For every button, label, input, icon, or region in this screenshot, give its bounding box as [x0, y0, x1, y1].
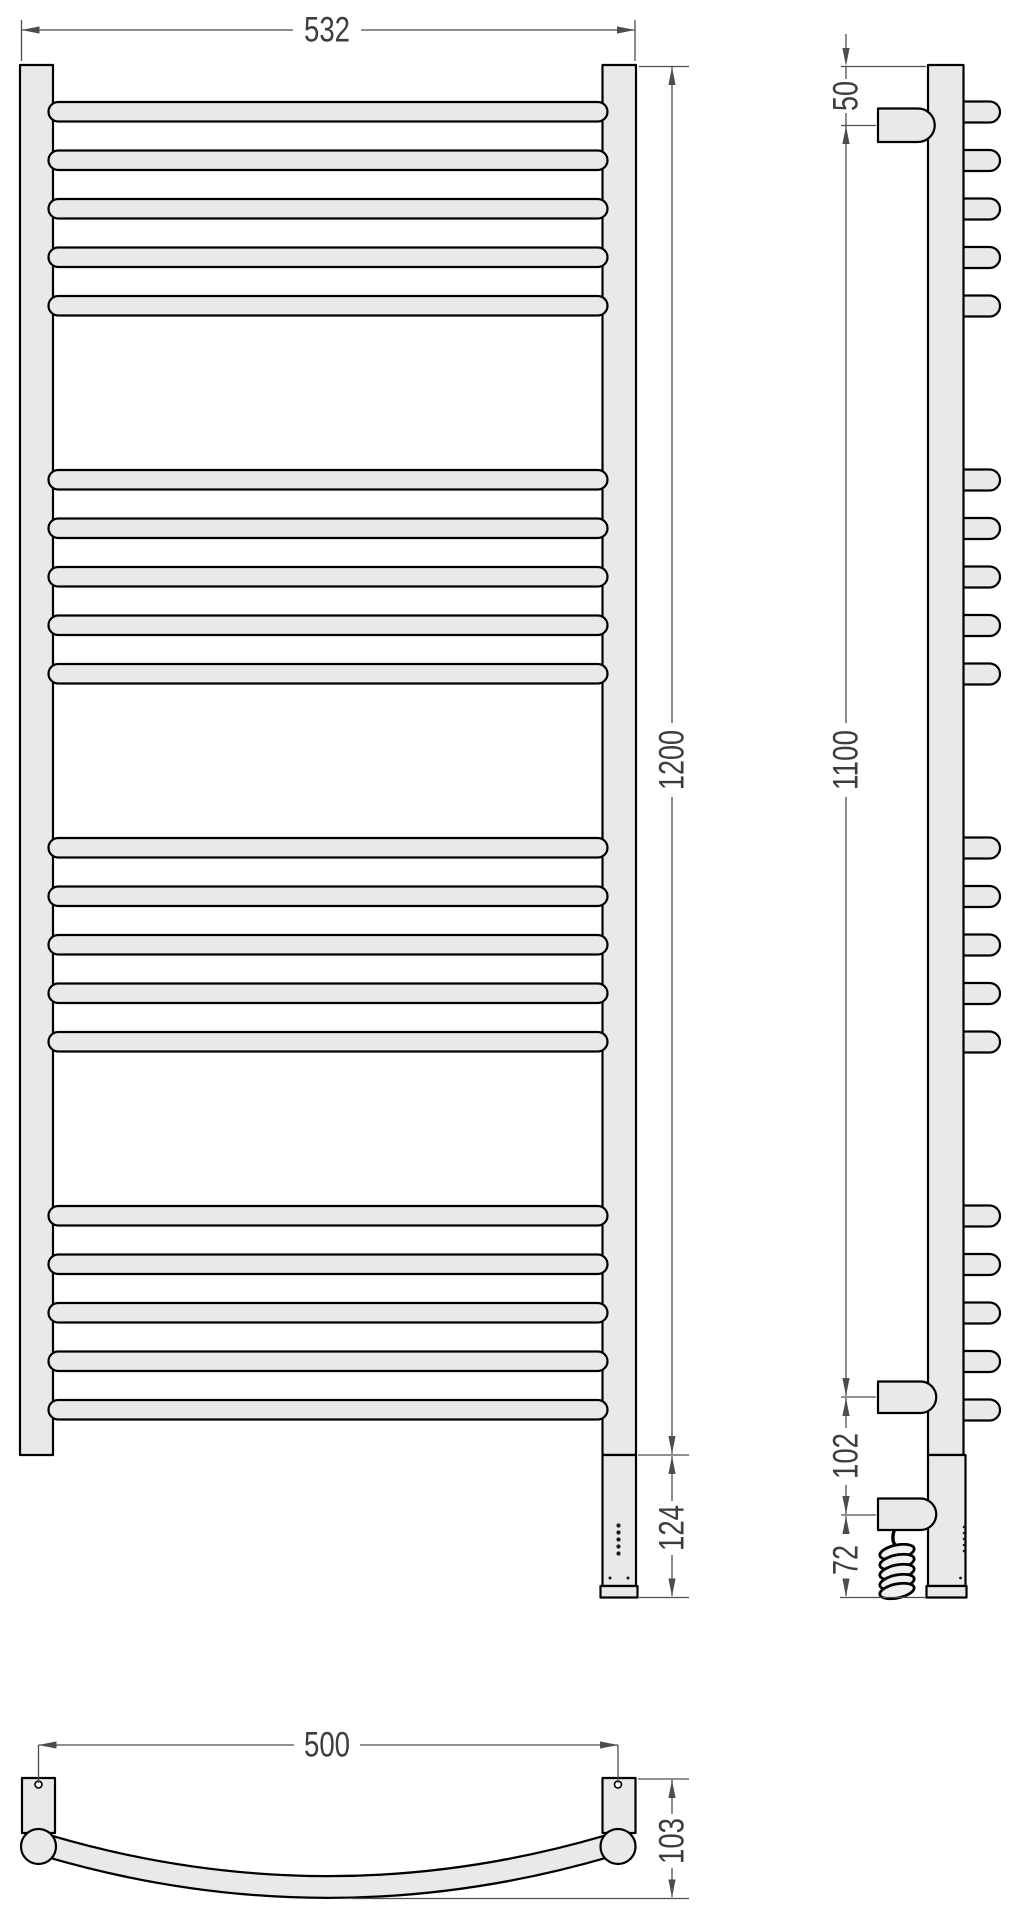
led-tick	[963, 1538, 966, 1541]
led-tick	[963, 1550, 966, 1553]
dim-label-102: 102	[827, 1433, 866, 1479]
led-dot	[616, 1523, 620, 1527]
front-rail	[49, 984, 608, 1004]
front-rail	[49, 1303, 608, 1323]
side-wall-bracket-lower	[878, 1382, 936, 1414]
dimension-front-width: 532	[22, 11, 636, 62]
front-rail	[49, 1206, 608, 1226]
dim-label-1200: 1200	[653, 730, 692, 790]
front-rails	[49, 102, 608, 1420]
front-rail	[49, 887, 608, 907]
led-dot	[616, 1530, 620, 1534]
led-dot	[616, 1537, 620, 1541]
front-rail	[49, 470, 608, 490]
led-dot	[616, 1544, 620, 1548]
side-post	[928, 65, 964, 1455]
side-heater-cap	[927, 1586, 967, 1598]
front-left-post	[20, 65, 53, 1455]
front-rail	[49, 935, 608, 955]
front-heater-housing	[603, 1455, 637, 1586]
front-rail	[49, 519, 608, 539]
front-rail	[49, 838, 608, 858]
front-rail	[49, 1032, 608, 1052]
power-cable-coil	[878, 1542, 915, 1602]
dim-label-72: 72	[827, 1545, 866, 1575]
side-screw-dot	[959, 1577, 962, 1580]
led-tick	[963, 1526, 966, 1529]
led-tick	[963, 1544, 966, 1547]
dimension-mount-spacing: 500	[39, 1726, 619, 1784]
screw-dot	[627, 1577, 630, 1580]
dimension-front-height: 1200	[638, 67, 692, 1456]
front-rail	[49, 1255, 608, 1275]
dimension-bracket-spacing: 1100	[827, 126, 877, 1397]
drawing-canvas: 532 1200 124 50	[0, 0, 1020, 1920]
front-rail	[49, 199, 608, 219]
led-dot	[616, 1551, 620, 1555]
dim-label-124: 124	[653, 1505, 692, 1551]
front-rail	[49, 616, 608, 636]
front-rail	[49, 296, 608, 316]
bottom-rail-curve	[48, 1846, 608, 1887]
front-rail	[49, 248, 608, 268]
drawing-page: 532 1200 124 50	[0, 0, 1020, 1920]
front-rail	[49, 567, 608, 587]
bottom-right-post-section	[601, 1829, 636, 1864]
front-rail	[49, 664, 608, 684]
front-view	[20, 65, 638, 1598]
dim-label-50: 50	[827, 81, 866, 111]
side-view	[878, 65, 1000, 1601]
dim-label-532: 532	[304, 11, 350, 50]
front-rail	[49, 1400, 608, 1420]
front-rail	[49, 1352, 608, 1372]
screw-dot	[609, 1577, 612, 1580]
dim-label-103: 103	[653, 1818, 692, 1864]
side-cable-bracket	[878, 1499, 936, 1531]
side-wall-bracket-top	[878, 109, 935, 143]
led-tick	[963, 1532, 966, 1535]
dimension-lower-gap: 102	[827, 1398, 877, 1515]
bottom-left-post-section	[21, 1829, 56, 1864]
front-heater-cap	[601, 1586, 638, 1598]
dimension-heater-section: 124	[639, 1456, 692, 1598]
dim-label-500: 500	[304, 1726, 350, 1765]
dim-label-1100: 1100	[827, 730, 866, 790]
bottom-view	[21, 1778, 636, 1887]
front-right-post	[603, 65, 637, 1455]
front-rail	[49, 102, 608, 122]
front-rail	[49, 151, 608, 171]
